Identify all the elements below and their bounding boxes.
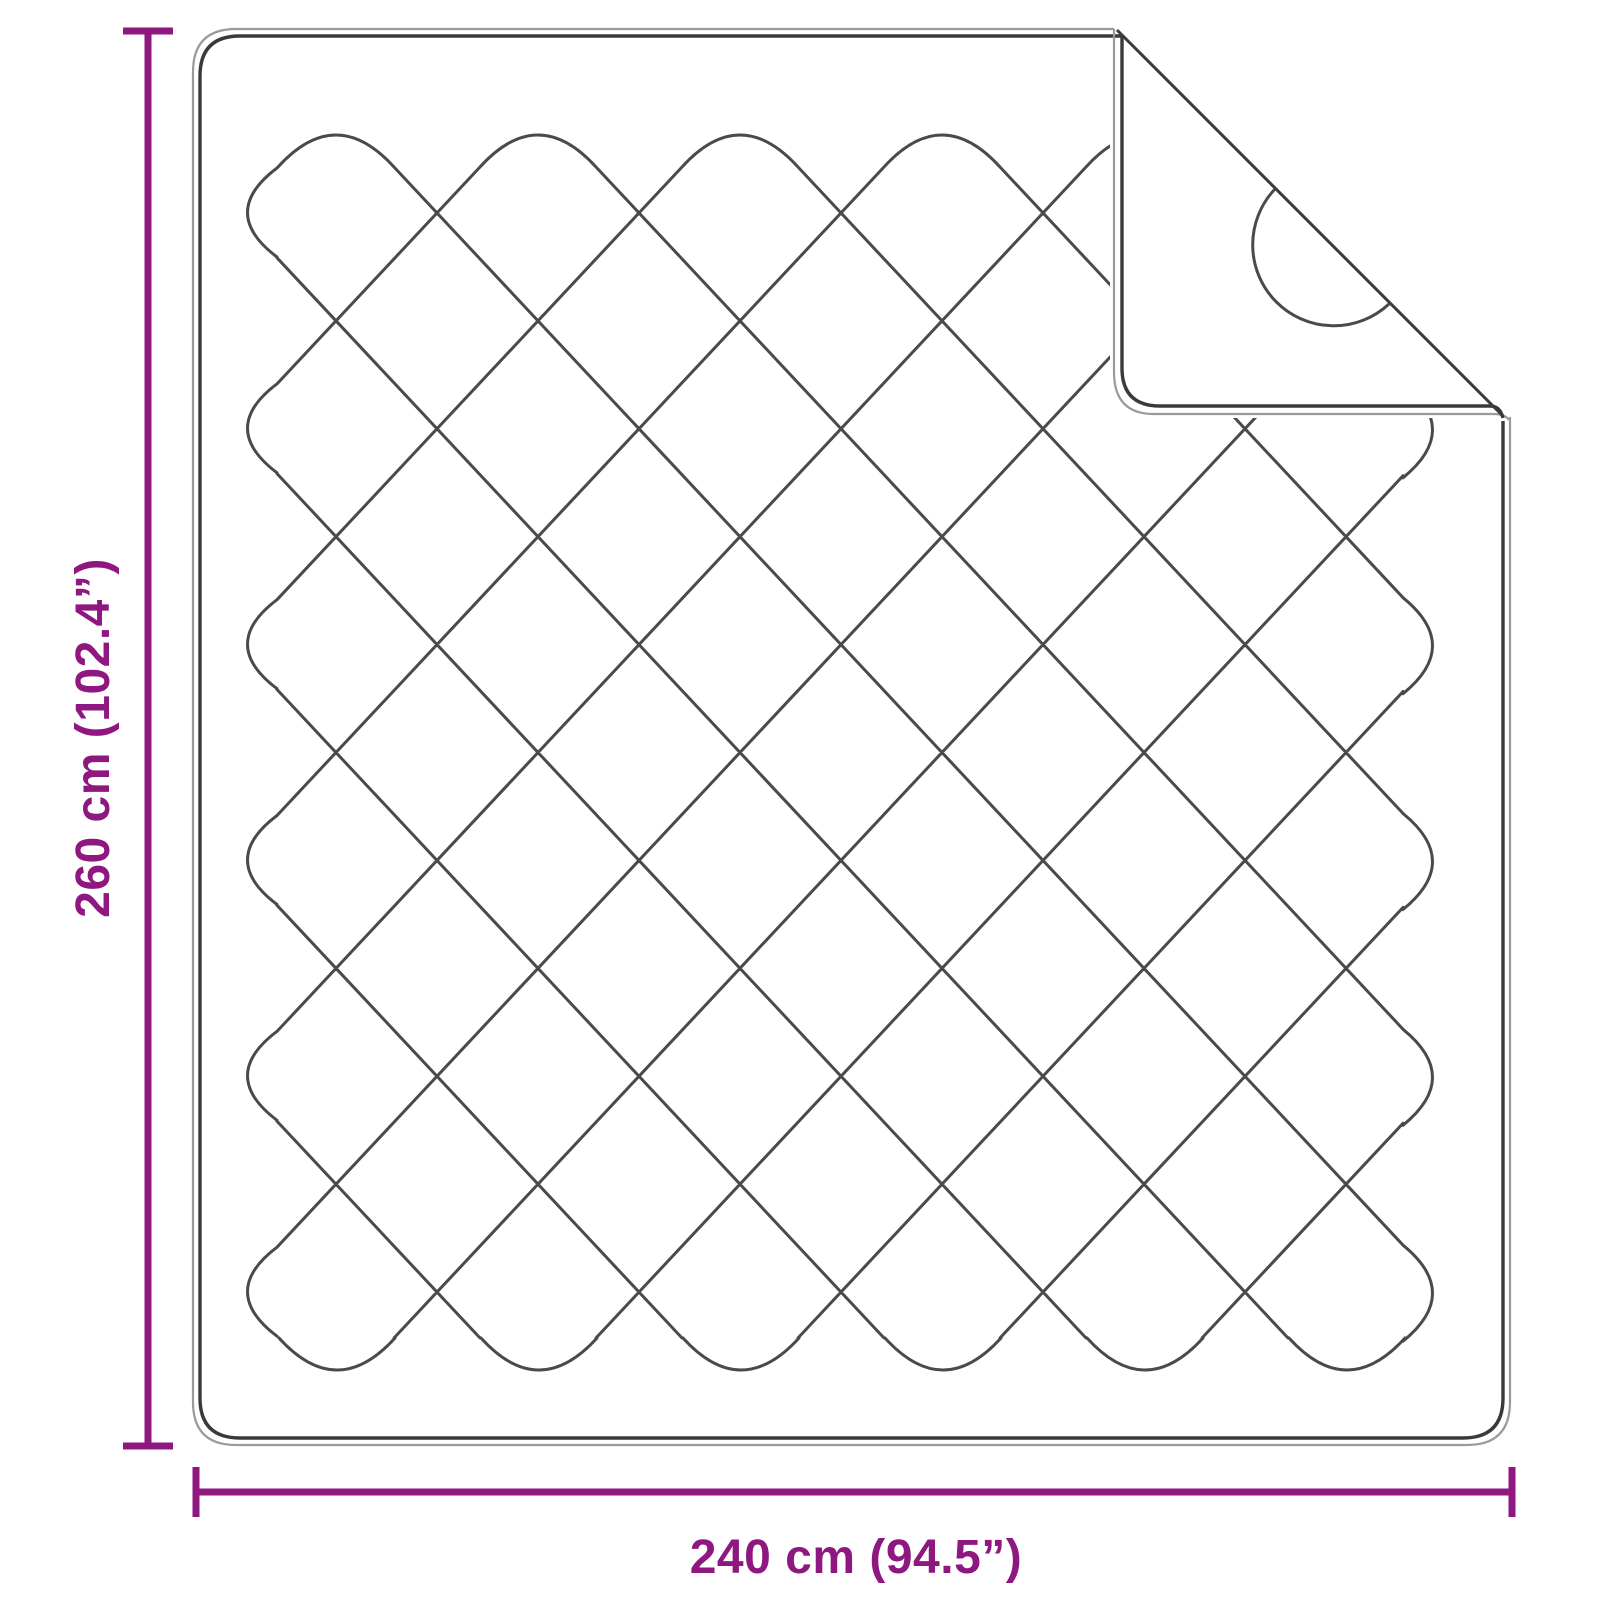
diagram-svg: 260 cm (102.4”) 240 cm (94.5”) [0, 0, 1600, 1600]
blanket-dimension-diagram: 260 cm (102.4”) 240 cm (94.5”) [0, 0, 1600, 1600]
height-dimension-label: 260 cm (102.4”) [67, 558, 120, 918]
background [0, 0, 1600, 1600]
width-dimension-label: 240 cm (94.5”) [690, 1531, 1023, 1584]
